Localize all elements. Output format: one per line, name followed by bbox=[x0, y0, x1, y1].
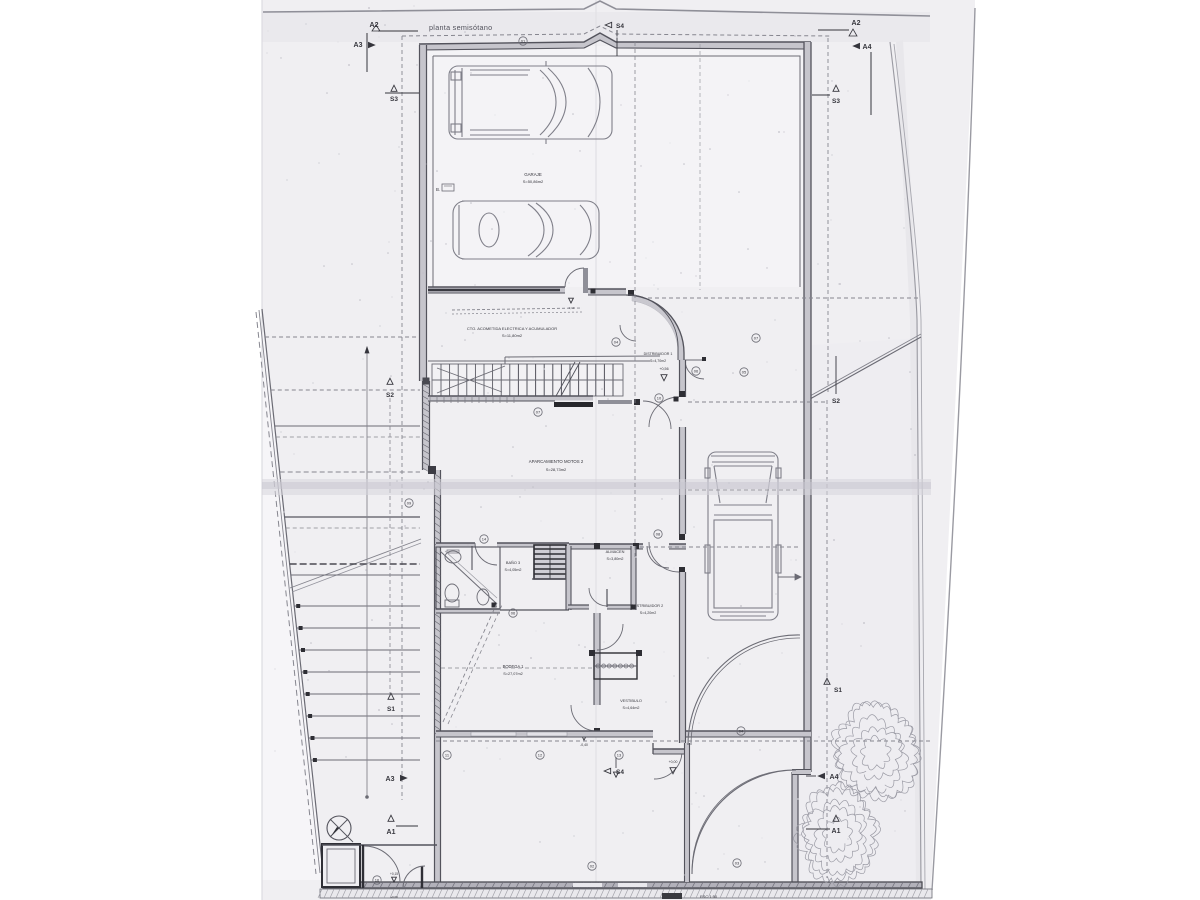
svg-text:S1: S1 bbox=[834, 687, 842, 694]
svg-text:S=4,05m2: S=4,05m2 bbox=[505, 568, 522, 572]
svg-text:BAÑO 3: BAÑO 3 bbox=[506, 560, 520, 565]
svg-text:+0,56: +0,56 bbox=[659, 367, 668, 371]
svg-text:06: 06 bbox=[511, 611, 516, 616]
svg-text:12: 12 bbox=[538, 753, 543, 758]
svg-text:ALMACEN: ALMACEN bbox=[606, 549, 625, 554]
svg-text:04: 04 bbox=[739, 729, 744, 734]
svg-text:06: 06 bbox=[694, 369, 699, 374]
svg-text:A3: A3 bbox=[354, 42, 363, 49]
svg-text:07: 07 bbox=[536, 410, 541, 415]
svg-text:+0,00: +0,00 bbox=[669, 760, 678, 764]
svg-text:02: 02 bbox=[590, 864, 595, 869]
svg-text:S=50,86m2: S=50,86m2 bbox=[523, 179, 544, 184]
svg-text:S2: S2 bbox=[386, 392, 394, 399]
svg-text:+0,15: +0,15 bbox=[390, 872, 398, 876]
svg-text:B.: B. bbox=[436, 187, 440, 192]
svg-text:04: 04 bbox=[614, 340, 619, 345]
svg-text:A1: A1 bbox=[387, 829, 396, 836]
svg-text:APARCAMIENTO MOTOS 2: APARCAMIENTO MOTOS 2 bbox=[529, 459, 584, 464]
svg-text:ESC 1:50: ESC 1:50 bbox=[700, 894, 718, 899]
svg-text:CTO. ACOMETIDA ELECTRICA Y ACU: CTO. ACOMETIDA ELECTRICA Y ACUMULADOR bbox=[467, 326, 557, 331]
svg-text:S=4,20m2: S=4,20m2 bbox=[640, 611, 656, 615]
svg-text:S=27,07m2: S=27,07m2 bbox=[503, 672, 523, 676]
svg-text:planta semisótano: planta semisótano bbox=[429, 23, 492, 32]
svg-text:03: 03 bbox=[735, 861, 740, 866]
svg-text:05: 05 bbox=[742, 370, 747, 375]
svg-text:S=4,70m2: S=4,70m2 bbox=[650, 359, 666, 363]
svg-text:10: 10 bbox=[657, 396, 662, 401]
svg-text:GARAJE: GARAJE bbox=[524, 172, 542, 177]
svg-text:DISTRIBUIDOR 2: DISTRIBUIDOR 2 bbox=[633, 604, 663, 608]
svg-text:S2: S2 bbox=[832, 398, 840, 405]
svg-text:S1: S1 bbox=[387, 706, 395, 713]
svg-text:-0,40: -0,40 bbox=[580, 743, 588, 747]
svg-text:A1: A1 bbox=[832, 828, 841, 835]
svg-text:08: 08 bbox=[656, 532, 661, 537]
svg-text:A2: A2 bbox=[852, 20, 861, 27]
svg-text:01: 01 bbox=[521, 39, 526, 44]
svg-text:A4: A4 bbox=[830, 774, 839, 781]
svg-text:14: 14 bbox=[482, 537, 487, 542]
svg-text:A3: A3 bbox=[386, 776, 395, 783]
svg-text:S=4,64m2: S=4,64m2 bbox=[623, 706, 640, 710]
svg-text:+0,00: +0,00 bbox=[390, 895, 398, 899]
svg-text:S3: S3 bbox=[390, 96, 398, 103]
svg-text:A4: A4 bbox=[863, 44, 872, 51]
svg-text:S4: S4 bbox=[616, 769, 624, 776]
svg-text:DISTRIBUIDOR 1: DISTRIBUIDOR 1 bbox=[644, 352, 673, 356]
svg-text:S=3,80m2: S=3,80m2 bbox=[607, 557, 624, 561]
svg-text:S3: S3 bbox=[832, 98, 840, 105]
svg-text:09: 09 bbox=[407, 501, 412, 506]
svg-text:07: 07 bbox=[754, 336, 759, 341]
svg-text:S=11,80m2: S=11,80m2 bbox=[502, 333, 523, 338]
svg-text:13: 13 bbox=[617, 753, 622, 758]
svg-text:16: 16 bbox=[375, 878, 380, 883]
svg-text:VESTIBULO: VESTIBULO bbox=[620, 698, 642, 703]
svg-text:S4: S4 bbox=[616, 23, 624, 30]
svg-text:S=28,73m2: S=28,73m2 bbox=[546, 467, 567, 472]
